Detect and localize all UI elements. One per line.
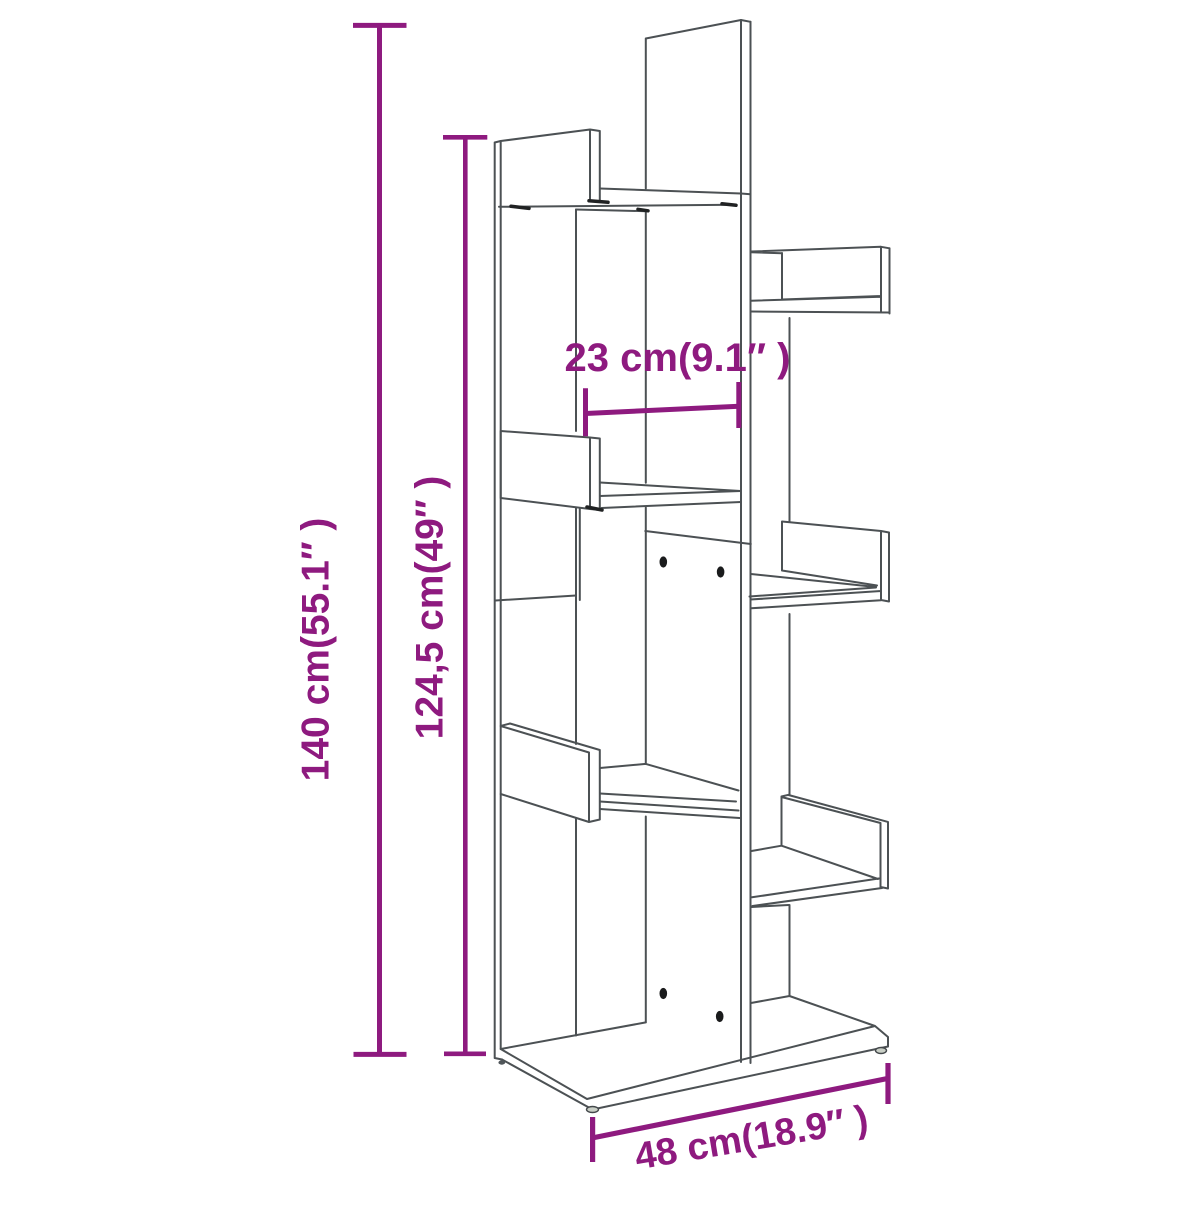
svg-text:124,5 cm(49″ ): 124,5 cm(49″ ) xyxy=(409,476,452,740)
svg-text:48 cm(18.9″ ): 48 cm(18.9″ ) xyxy=(632,1098,871,1178)
svg-text:140 cm(55.1″ ): 140 cm(55.1″ ) xyxy=(295,518,338,782)
svg-text:23 cm(9.1″ ): 23 cm(9.1″ ) xyxy=(565,336,791,380)
